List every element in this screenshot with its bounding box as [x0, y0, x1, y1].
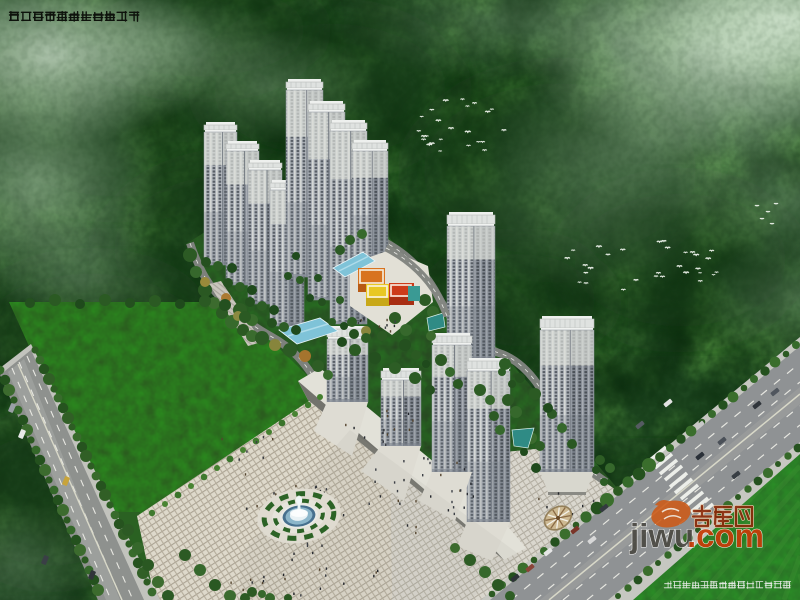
svg-text:.com: .com — [687, 517, 764, 554]
svg-text:jiwu: jiwu — [629, 517, 694, 554]
